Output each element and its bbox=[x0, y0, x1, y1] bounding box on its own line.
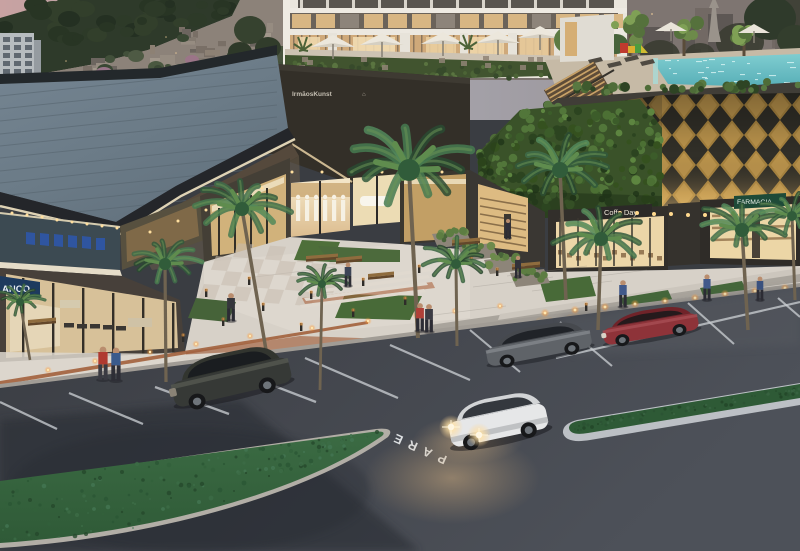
svg-text:⌂️: ⌂️ bbox=[362, 92, 366, 98]
svg-text:IrmãosKunst: IrmãosKunst bbox=[292, 91, 333, 98]
